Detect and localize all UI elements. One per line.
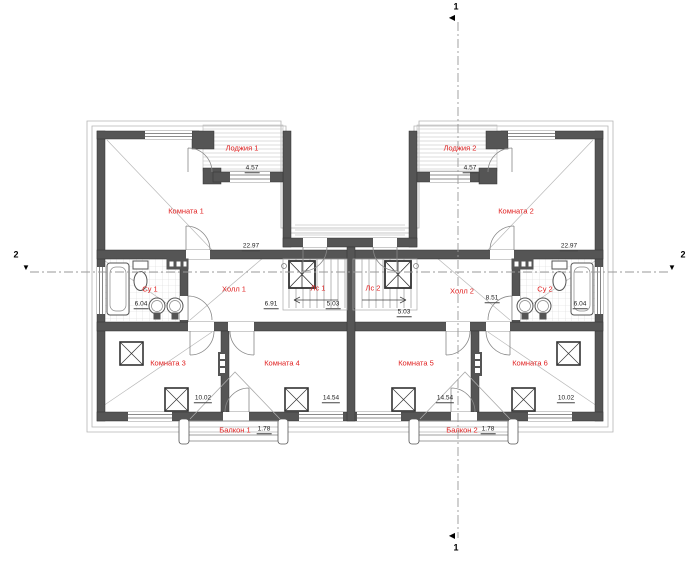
chimney-icon xyxy=(512,388,535,411)
toilet-icon xyxy=(133,261,148,269)
room-label-room-1: Комната 1 xyxy=(168,207,204,215)
section-arrow-icon: ◀ xyxy=(449,532,455,540)
room-label-stair-1: Лс 1 xyxy=(311,284,326,292)
room-label-bath-2: Су 2 xyxy=(537,285,552,293)
area-room-5: 14.54 xyxy=(436,395,454,403)
section-arrow-icon: ▼ xyxy=(22,264,30,272)
area-stair-1: 5.03 xyxy=(326,301,341,309)
area-bath-2: 6.04 xyxy=(573,301,588,309)
section-marker-1-bottom: 1 xyxy=(453,544,458,553)
area-loggia-1: 4.57 xyxy=(245,165,260,173)
room-label-balcony-1: Балкон 1 xyxy=(219,426,250,434)
area-stair-2: 5.03 xyxy=(397,309,412,317)
area-hall-2: 8.51 xyxy=(485,295,500,303)
chimney-icon xyxy=(557,342,580,365)
room-label-room-4: Комната 4 xyxy=(264,359,300,367)
section-arrow-icon: ◀ xyxy=(449,14,455,22)
room-label-loggia-2: Лоджия 2 xyxy=(444,144,477,152)
area-room-4: 14.54 xyxy=(322,395,340,403)
room-label-loggia-1: Лоджия 1 xyxy=(226,144,259,152)
floor-plan-canvas: Лоджия 1 Лоджия 2 Комната 1 Комната 2 Су… xyxy=(0,0,700,561)
chimney-icon xyxy=(120,342,143,365)
area-balcony-2: 1.78 xyxy=(481,426,496,434)
room-label-stair-2: Лс 2 xyxy=(366,284,381,292)
chimney-icon xyxy=(392,388,415,411)
room-label-hall-2: Холл 2 xyxy=(450,287,474,295)
area-bath-1: 6.04 xyxy=(134,301,149,309)
section-arrow-icon: ▼ xyxy=(668,264,676,272)
section-marker-2-left: 2 xyxy=(13,251,18,260)
section-marker-2-right: 2 xyxy=(680,251,685,260)
floor-plan-drawing xyxy=(0,0,700,561)
area-room-2: 22.97 xyxy=(560,243,578,251)
room-label-bath-1: Су 1 xyxy=(142,285,157,293)
area-room-3: 10.02 xyxy=(194,395,212,403)
area-hall-1: 6.91 xyxy=(264,301,279,309)
area-room-1: 22.97 xyxy=(242,243,260,251)
area-balcony-1: 1.78 xyxy=(257,426,272,434)
toilet-icon xyxy=(552,261,567,269)
staircase-2 xyxy=(353,259,419,310)
vent-strip-icon xyxy=(218,352,227,376)
section-marker-1-top: 1 xyxy=(453,3,458,12)
porch-steps xyxy=(295,225,405,235)
room-label-room-2: Комната 2 xyxy=(498,207,534,215)
room-label-room-6: Комната 6 xyxy=(512,359,548,367)
chimney-icon xyxy=(165,388,188,411)
area-room-6: 10.02 xyxy=(557,395,575,403)
area-loggia-2: 4.57 xyxy=(463,165,478,173)
chimney-icon xyxy=(285,388,308,411)
room-label-balcony-2: Балкон 2 xyxy=(446,426,477,434)
room-label-room-5: Комната 5 xyxy=(398,359,434,367)
room-label-room-3: Комната 3 xyxy=(150,359,186,367)
vent-strip-icon xyxy=(473,352,482,376)
room-label-hall-1: Холл 1 xyxy=(222,285,246,293)
